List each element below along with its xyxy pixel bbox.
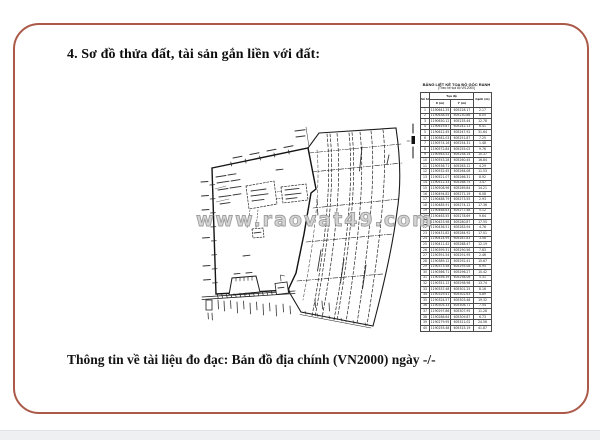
measurement-info-text: Thông tin về tài liệu đo đạc: Bản đồ địa…: [67, 352, 436, 368]
north-marker: [407, 124, 415, 158]
header-y: Y (m): [451, 100, 474, 108]
bottom-left-structure: [206, 300, 212, 320]
coordinate-table: Số hiệu điểm Tọa độ Cạnh (m) X (m) Y (m)…: [420, 92, 492, 332]
cell-n: 40: [421, 326, 430, 332]
coordinate-table-header: Số hiệu điểm Tọa độ Cạnh (m) X (m) Y (m): [421, 92, 492, 107]
header-coords: Tọa độ: [430, 92, 474, 100]
left-edge-micro-labels: [201, 182, 211, 281]
header-x: X (m): [430, 100, 451, 108]
header-point: Số hiệu điểm: [421, 92, 430, 107]
cadastral-drawing: [145, 90, 425, 350]
page-title: 4. Sơ đồ thửa đất, tài sản gắn liền với …: [67, 47, 320, 63]
header-edge: Cạnh (m): [474, 92, 492, 107]
cell-d: 41.87: [474, 326, 492, 332]
table-row: 401190255.48605315.1941.87: [421, 326, 492, 332]
coordinate-rows: 11190641.25605228.172.1721190638.5460523…: [421, 107, 492, 331]
coordinate-table-subtitle: (Theo hệ tọa độ VN-2000): [420, 87, 493, 91]
parcel-topright-leader: [306, 127, 309, 147]
coordinate-table-section: BẢNG LIỆT KÊ TỌA ĐỘ GÓC RANH (Theo hệ tọ…: [420, 83, 498, 332]
cell-y: 605315.19: [451, 326, 474, 332]
cell-x: 1190255.48: [430, 326, 451, 332]
